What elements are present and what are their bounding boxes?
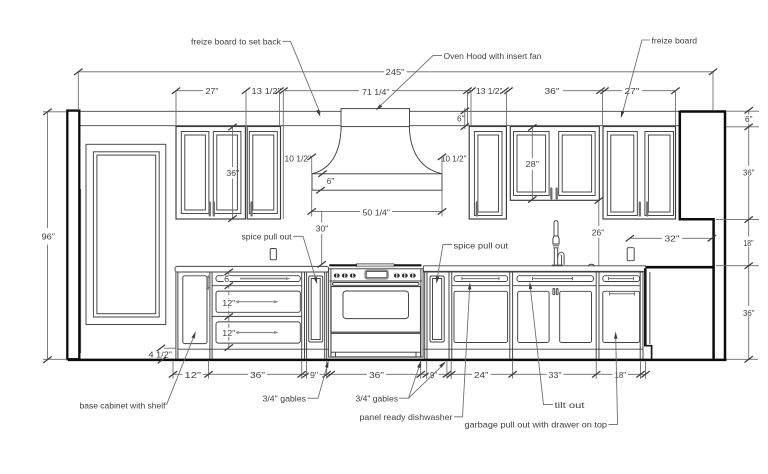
svg-text:12": 12"	[222, 328, 235, 338]
svg-text:freize board to set back: freize board to set back	[191, 37, 282, 47]
svg-text:36": 36"	[743, 308, 755, 318]
svg-text:3/4" gables: 3/4" gables	[263, 394, 307, 404]
svg-text:3/4" gables: 3/4" gables	[356, 394, 399, 404]
svg-text:33": 33"	[549, 370, 562, 380]
svg-text:36": 36"	[227, 168, 240, 178]
svg-text:13 1/2": 13 1/2"	[476, 86, 503, 96]
svg-text:freize board: freize board	[652, 35, 698, 45]
svg-text:Oven Hood with insert fan: Oven Hood with insert fan	[444, 51, 542, 61]
svg-text:30": 30"	[316, 224, 329, 234]
svg-text:32": 32"	[665, 233, 680, 243]
svg-text:10 1/2": 10 1/2"	[285, 154, 312, 164]
svg-text:6: 6	[224, 274, 229, 284]
svg-text:base cabinet with shelf: base cabinet with shelf	[80, 400, 167, 410]
svg-text:27": 27"	[625, 86, 640, 96]
svg-text:36": 36"	[545, 86, 560, 96]
svg-text:9": 9"	[310, 370, 318, 380]
svg-text:6": 6"	[457, 113, 465, 123]
svg-text:4 1/2": 4 1/2"	[149, 349, 173, 359]
svg-text:tilt out: tilt out	[555, 400, 586, 410]
svg-text:12": 12"	[222, 298, 235, 308]
svg-text:36": 36"	[743, 168, 755, 178]
svg-text:26": 26"	[592, 228, 605, 238]
svg-text:garbage pull out with drawer o: garbage pull out with drawer on top	[465, 420, 608, 430]
svg-text:spice pull out: spice pull out	[242, 232, 293, 242]
svg-text:50 1/4": 50 1/4"	[363, 208, 391, 218]
svg-text:10 1/2": 10 1/2"	[441, 154, 467, 164]
svg-text:18": 18"	[744, 238, 754, 248]
svg-text:panel ready dishwasher: panel ready dishwasher	[360, 412, 453, 422]
svg-text:spice pull out: spice pull out	[454, 240, 509, 250]
svg-text:24": 24"	[474, 370, 489, 380]
svg-text:36": 36"	[250, 370, 265, 380]
svg-text:96": 96"	[42, 232, 56, 242]
svg-text:6": 6"	[327, 176, 335, 186]
svg-text:13 1/2": 13 1/2"	[252, 86, 282, 96]
svg-text:245": 245"	[386, 67, 405, 77]
svg-text:36": 36"	[369, 370, 384, 380]
svg-text:28": 28"	[526, 159, 540, 169]
svg-text:27": 27"	[206, 86, 219, 96]
svg-text:71 1/4": 71 1/4"	[362, 87, 390, 97]
svg-text:12": 12"	[185, 370, 202, 380]
svg-text:6": 6"	[745, 114, 753, 124]
